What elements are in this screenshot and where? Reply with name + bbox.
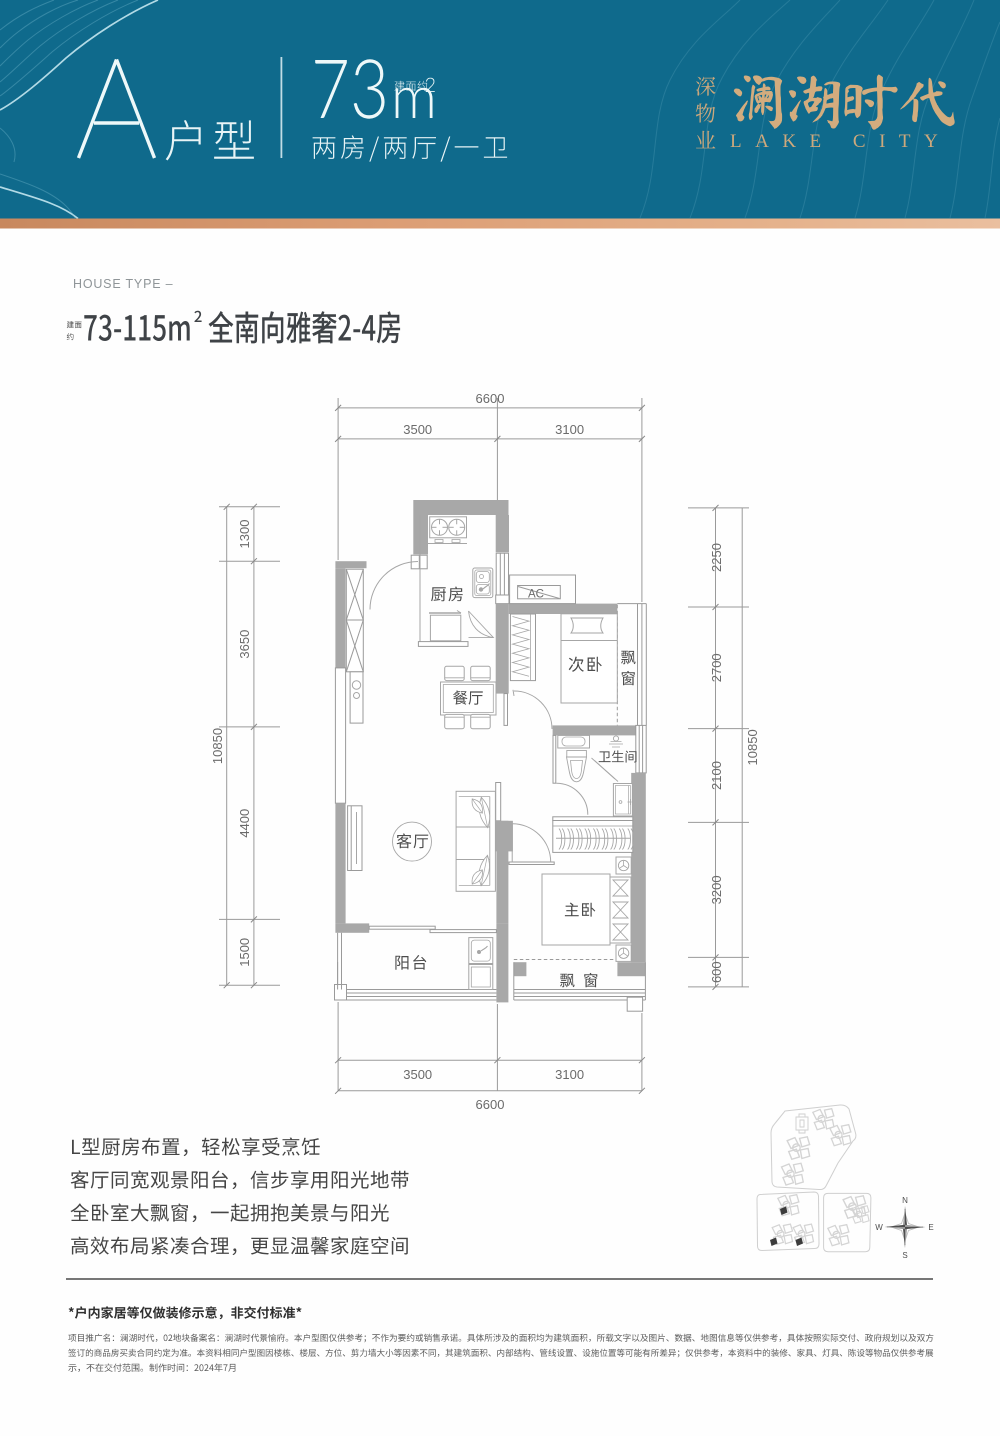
- svg-text:4400: 4400: [237, 809, 252, 838]
- svg-text:N: N: [902, 1196, 908, 1205]
- svg-text:3500: 3500: [403, 1067, 432, 1082]
- svg-text:LAKE CITY: LAKE CITY: [730, 131, 951, 152]
- svg-text:6600: 6600: [476, 1097, 505, 1112]
- svg-text:3650: 3650: [237, 630, 252, 659]
- svg-text:1500: 1500: [237, 938, 252, 967]
- svg-text:3100: 3100: [555, 422, 584, 437]
- svg-text:3500: 3500: [403, 422, 432, 437]
- svg-text:10850: 10850: [745, 729, 760, 765]
- svg-text:10850: 10850: [210, 728, 225, 764]
- svg-text:HOUSE TYPE –: HOUSE TYPE –: [73, 277, 173, 291]
- svg-text:1300: 1300: [237, 520, 252, 549]
- svg-text:W: W: [875, 1223, 883, 1232]
- svg-text:2700: 2700: [709, 653, 724, 682]
- svg-text:600: 600: [709, 961, 724, 983]
- svg-text:2100: 2100: [709, 761, 724, 790]
- svg-text:3100: 3100: [555, 1067, 584, 1082]
- svg-text:E: E: [928, 1223, 933, 1232]
- svg-text:AC: AC: [528, 589, 544, 601]
- svg-text:6600: 6600: [476, 391, 505, 406]
- svg-text:2250: 2250: [709, 543, 724, 572]
- svg-text:3200: 3200: [709, 875, 724, 904]
- svg-text:S: S: [902, 1251, 907, 1260]
